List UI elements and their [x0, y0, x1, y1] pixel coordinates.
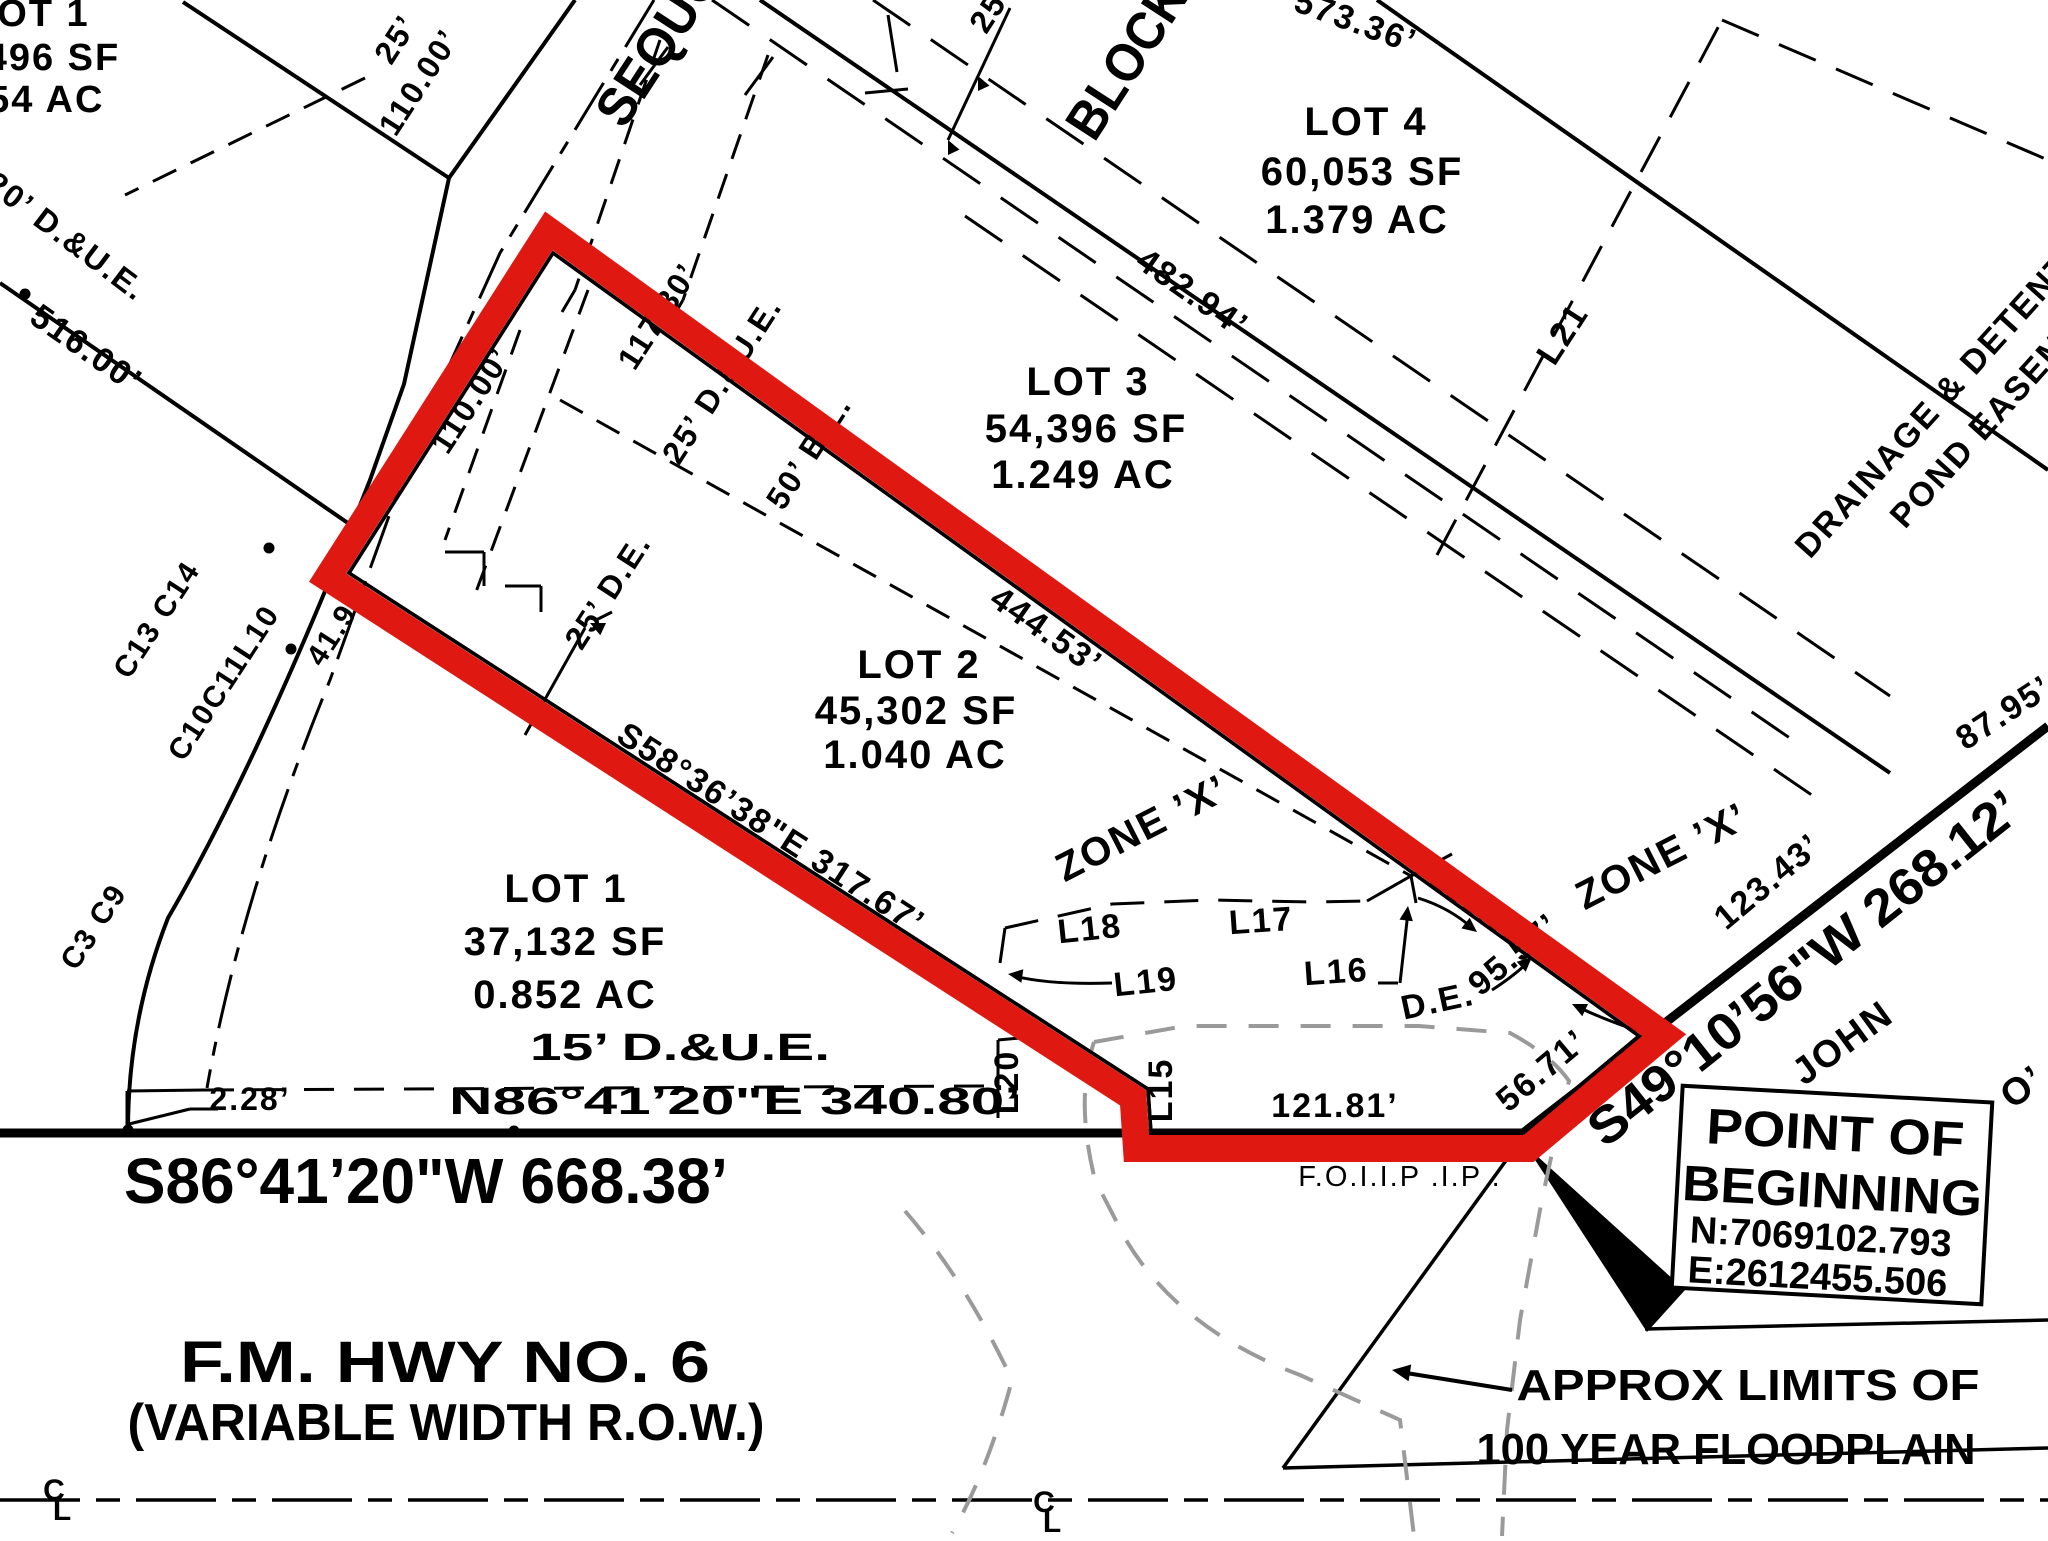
svg-text:854 AC: 854 AC [0, 79, 104, 121]
svg-text:L18: L18 [1056, 907, 1124, 952]
svg-text:1.249 AC: 1.249 AC [991, 453, 1175, 497]
svg-text:LOT 4: LOT 4 [1304, 100, 1427, 144]
svg-text:37,132 SF: 37,132 SF [464, 920, 667, 964]
svg-text:2.28’: 2.28’ [209, 1081, 290, 1117]
svg-text:LOT 1: LOT 1 [504, 867, 627, 911]
svg-text:APPROX LIMITS OF: APPROX LIMITS OF [1517, 1361, 1980, 1410]
svg-text:1.379 AC: 1.379 AC [1265, 198, 1449, 242]
svg-text:LOT 2: LOT 2 [857, 643, 980, 687]
svg-text:(VARIABLE WIDTH R.O.W.): (VARIABLE WIDTH R.O.W.) [128, 1394, 765, 1452]
svg-text:1.040 AC: 1.040 AC [823, 733, 1007, 777]
svg-text:15’ D.&U.E.: 15’ D.&U.E. [530, 1027, 830, 1069]
svg-text:6,496 SF: 6,496 SF [0, 37, 120, 79]
svg-text:LOT 3: LOT 3 [1026, 360, 1149, 404]
svg-text:0.852 AC: 0.852 AC [473, 973, 657, 1017]
svg-text:L16: L16 [1303, 951, 1370, 993]
svg-text:60,053 SF: 60,053 SF [1261, 150, 1464, 194]
svg-text:100 YEAR FLOODPLAIN: 100 YEAR FLOODPLAIN [1477, 1425, 1976, 1474]
svg-text:S86°41’20"W 668.38’: S86°41’20"W 668.38’ [124, 1145, 728, 1217]
svg-text:54,396 SF: 54,396 SF [985, 407, 1188, 451]
svg-text:LOT 1: LOT 1 [0, 0, 90, 35]
svg-text:L: L [53, 1494, 73, 1527]
svg-text:N86°41’20"E 340.80’: N86°41’20"E 340.80’ [449, 1081, 1021, 1123]
svg-text:F.O.I.I.P .I.P .: F.O.I.I.P .I.P . [1298, 1161, 1501, 1193]
svg-text:121.81’: 121.81’ [1271, 1087, 1398, 1125]
svg-text:L17: L17 [1228, 900, 1295, 942]
svg-text:45,302 SF: 45,302 SF [815, 689, 1018, 733]
svg-text:L19: L19 [1112, 960, 1180, 1005]
svg-text:F.M. HWY NO. 6: F.M. HWY NO. 6 [180, 1330, 710, 1395]
svg-text:L: L [1043, 1506, 1063, 1536]
